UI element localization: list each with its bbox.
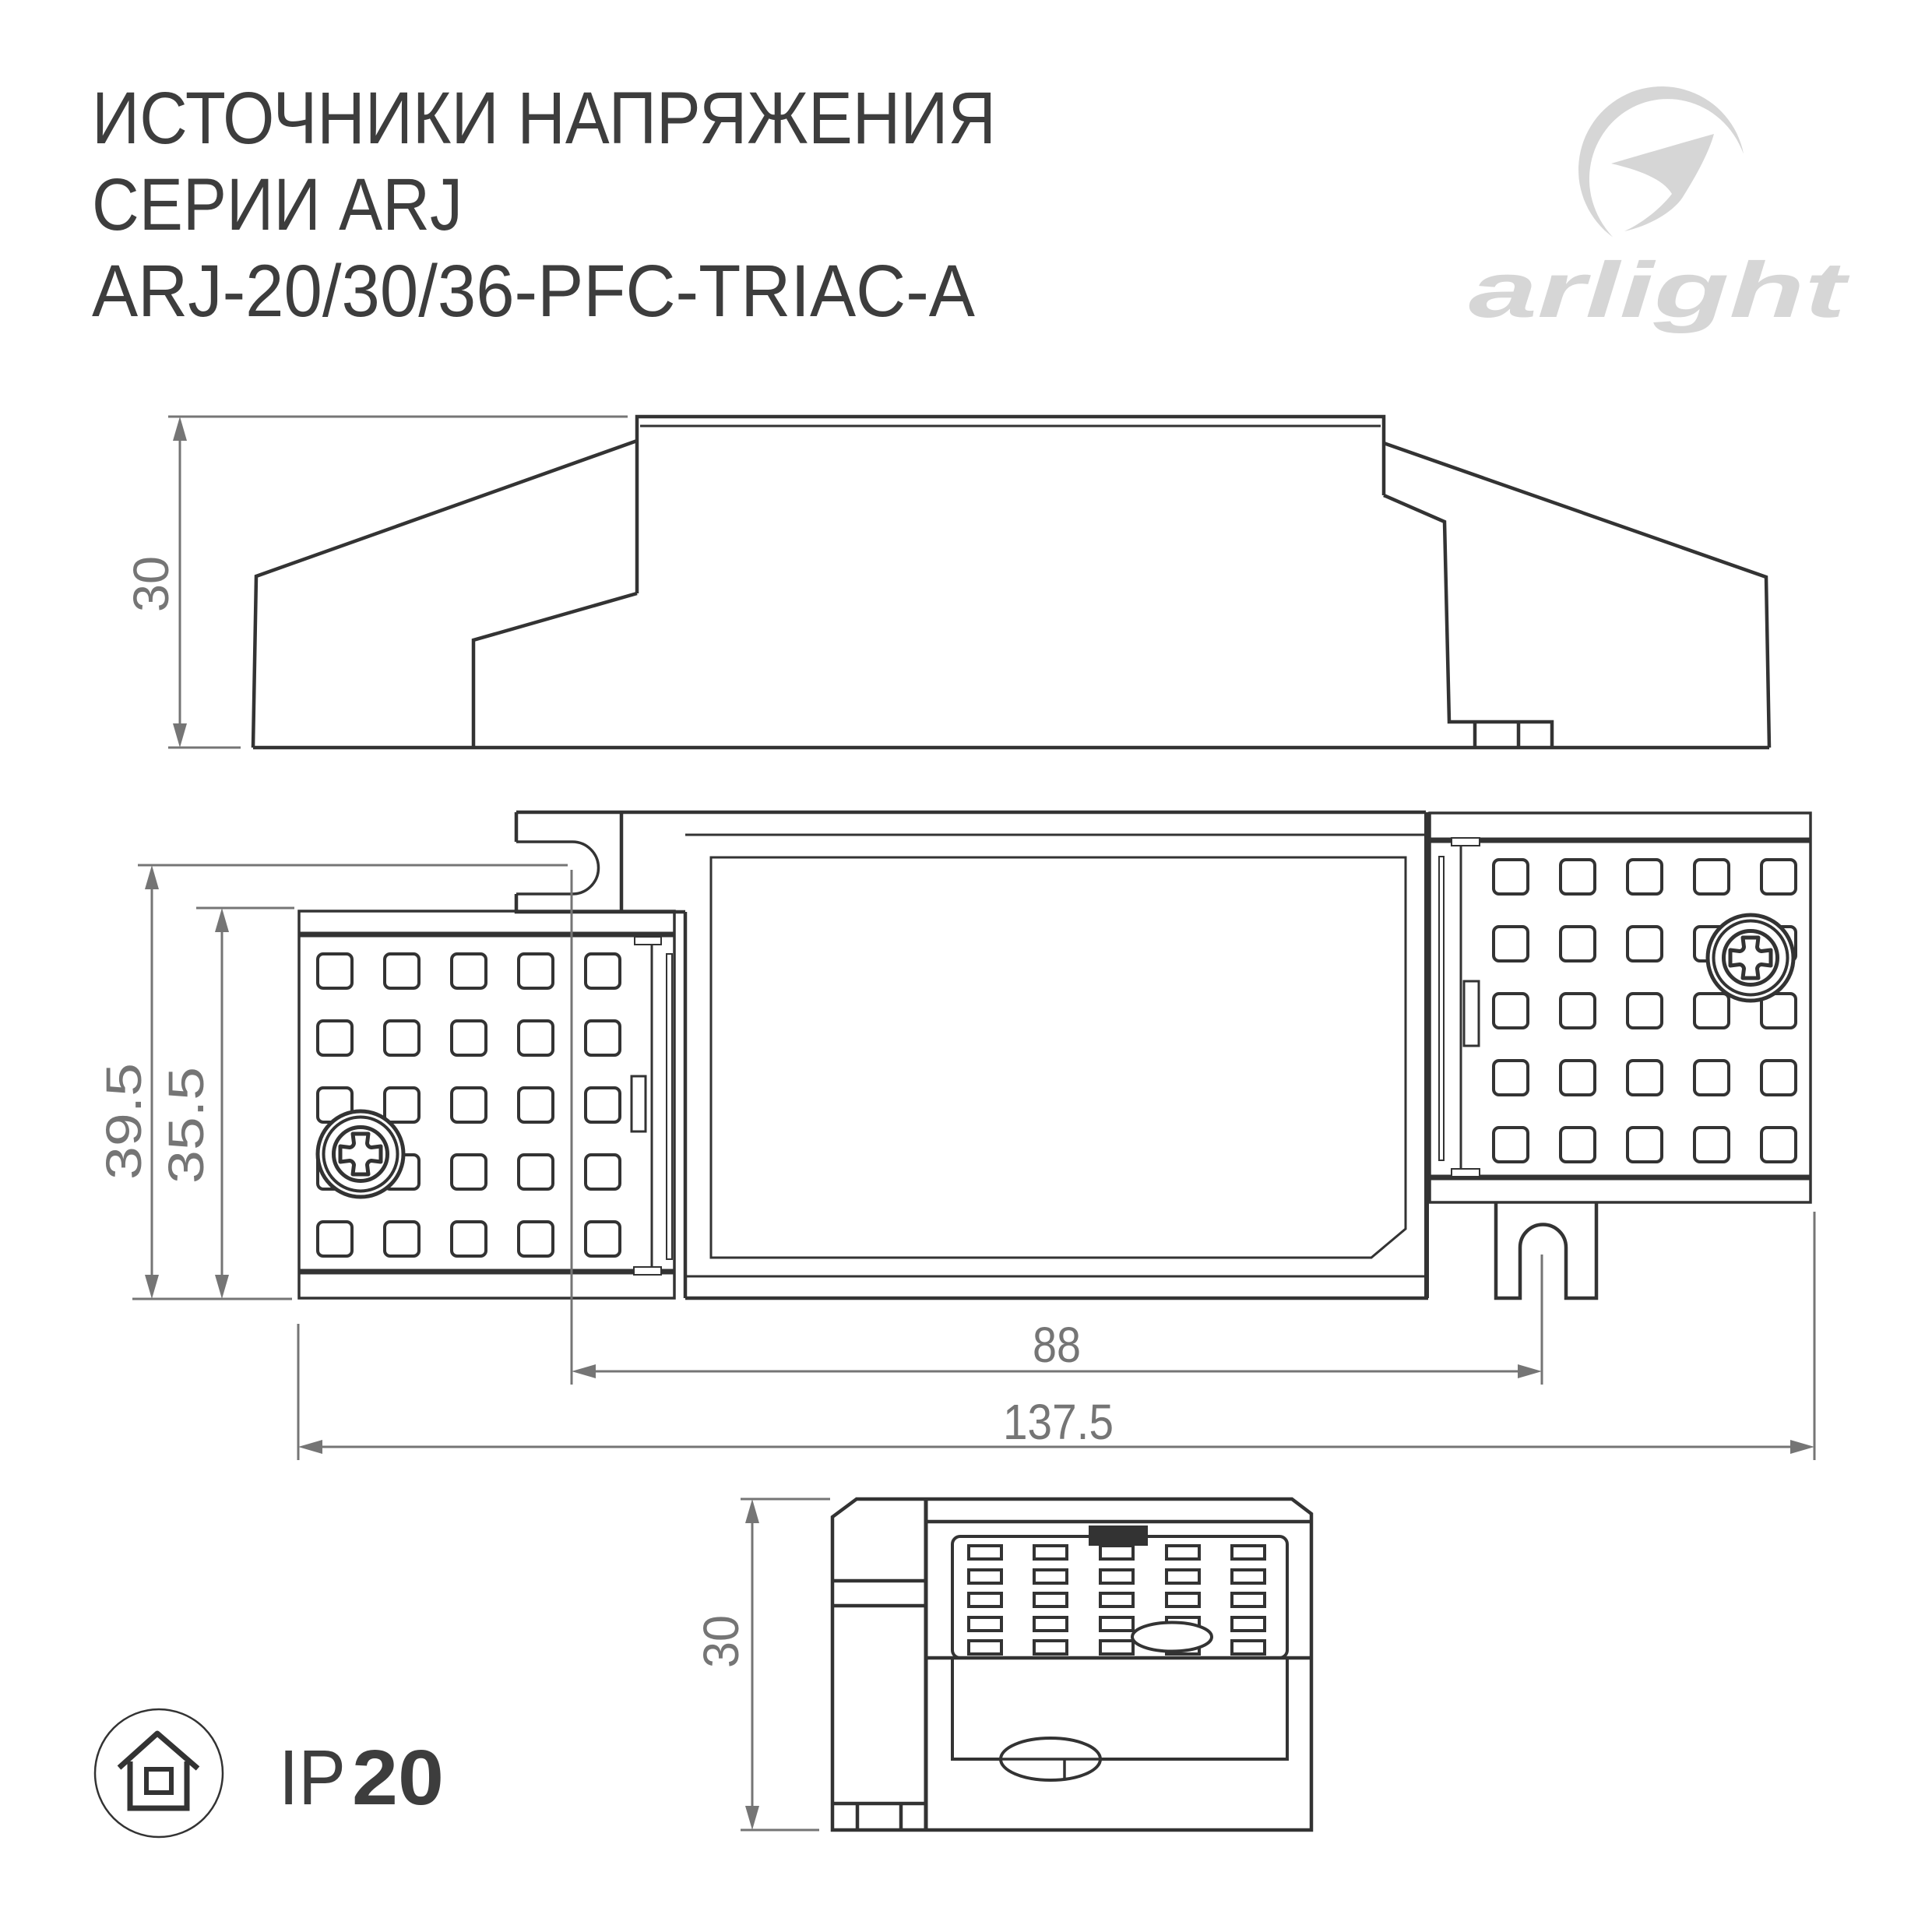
svg-text:20: 20 [352, 1734, 444, 1821]
svg-text:arlight: arlight [1469, 247, 1851, 334]
svg-text:39.5: 39.5 [96, 1063, 152, 1180]
svg-text:30: 30 [693, 1615, 749, 1668]
svg-text:ИСТОЧНИКИ НАПРЯЖЕНИЯ: ИСТОЧНИКИ НАПРЯЖЕНИЯ [92, 77, 996, 160]
svg-text:IP: IP [279, 1734, 346, 1821]
svg-text:88: 88 [1033, 1317, 1081, 1373]
svg-text:30: 30 [123, 556, 179, 612]
svg-text:137.5: 137.5 [1003, 1394, 1114, 1450]
svg-text:СЕРИИ ARJ: СЕРИИ ARJ [92, 164, 463, 246]
svg-text:35.5: 35.5 [158, 1067, 214, 1184]
svg-text:ARJ-20/30/36-PFC-TRIAC-A: ARJ-20/30/36-PFC-TRIAC-A [92, 250, 976, 333]
